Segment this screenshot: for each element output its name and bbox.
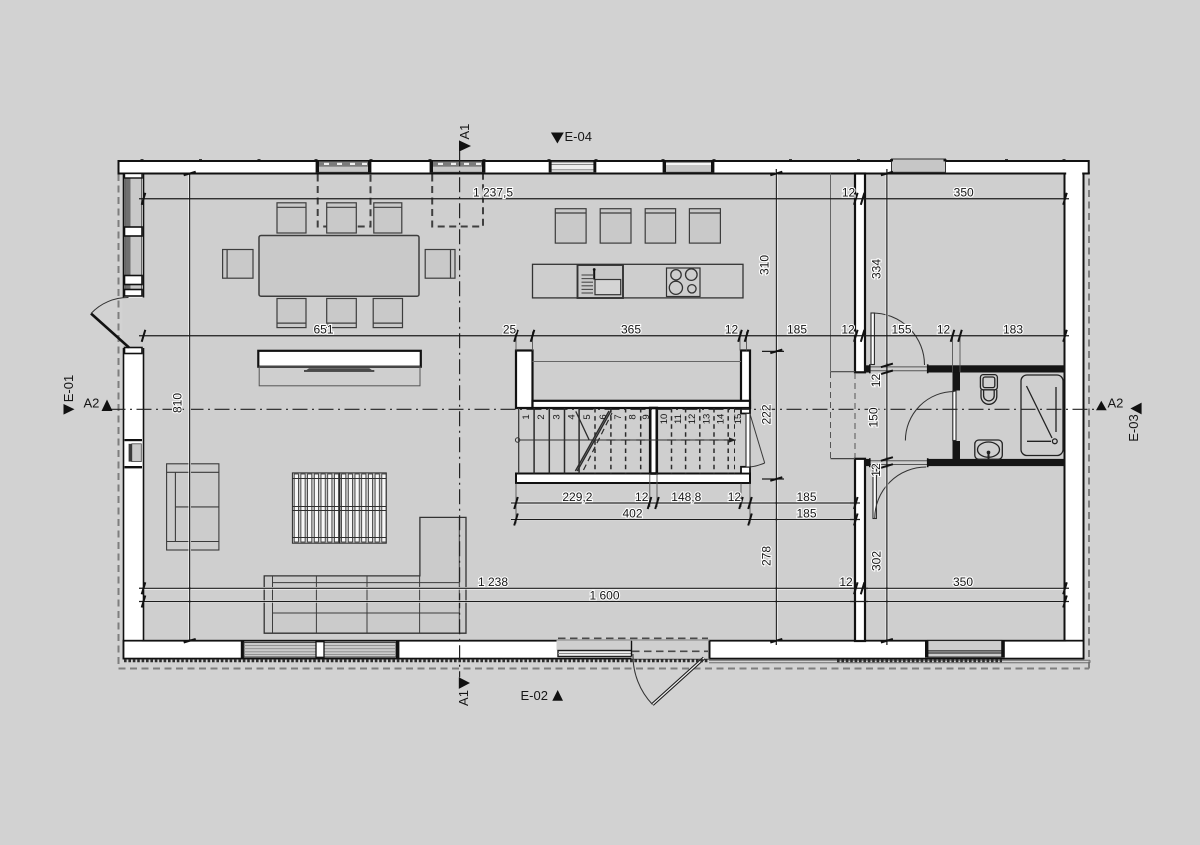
svg-text:185: 185 [796,506,816,520]
svg-text:302: 302 [870,551,884,571]
svg-text:1 238: 1 238 [478,575,508,589]
svg-text:E-03: E-03 [1126,414,1141,441]
svg-text:9: 9 [641,414,652,419]
svg-text:A2: A2 [84,396,100,411]
svg-text:148,8: 148,8 [671,490,701,504]
svg-text:8: 8 [628,414,639,419]
svg-text:25: 25 [503,323,517,337]
svg-text:E-02: E-02 [521,688,548,703]
svg-text:278: 278 [760,546,774,566]
svg-text:350: 350 [954,186,974,200]
svg-text:3: 3 [551,414,562,419]
svg-text:2: 2 [536,414,547,419]
svg-text:1: 1 [521,414,532,419]
svg-text:11: 11 [673,414,684,424]
svg-text:365: 365 [621,323,641,337]
svg-text:6: 6 [598,414,609,419]
svg-text:E-04: E-04 [565,129,592,144]
svg-text:12: 12 [687,414,698,425]
svg-text:5: 5 [582,414,593,419]
svg-text:12: 12 [635,490,649,504]
svg-text:310: 310 [758,255,772,275]
svg-text:12: 12 [869,374,883,388]
svg-text:334: 334 [869,259,883,279]
svg-text:7: 7 [613,414,624,419]
svg-text:350: 350 [953,575,973,589]
svg-text:155: 155 [891,323,911,337]
svg-text:651: 651 [313,323,333,337]
svg-text:13: 13 [701,414,712,425]
svg-text:10: 10 [659,414,670,425]
svg-text:1 600: 1 600 [589,588,619,602]
svg-text:12: 12 [869,463,883,477]
svg-text:183: 183 [1003,323,1023,337]
svg-text:150: 150 [867,407,881,427]
svg-text:12: 12 [937,323,951,337]
svg-text:229,2: 229,2 [562,490,592,504]
svg-text:185: 185 [796,490,816,504]
svg-text:12: 12 [728,490,742,504]
svg-text:E-01: E-01 [61,375,76,402]
svg-text:A2: A2 [1108,396,1124,411]
svg-text:12: 12 [839,575,853,589]
svg-text:14: 14 [716,414,727,425]
svg-text:4: 4 [566,414,577,419]
svg-text:1 237,5: 1 237,5 [473,186,513,200]
svg-text:402: 402 [622,506,642,520]
svg-text:A1: A1 [456,690,471,706]
svg-text:222: 222 [760,404,774,424]
svg-text:12: 12 [841,323,855,337]
svg-text:185: 185 [787,323,807,337]
svg-text:12: 12 [842,186,856,200]
svg-text:15: 15 [733,414,744,425]
svg-text:A1: A1 [457,124,472,140]
svg-text:810: 810 [171,393,185,413]
svg-text:12: 12 [725,323,739,337]
